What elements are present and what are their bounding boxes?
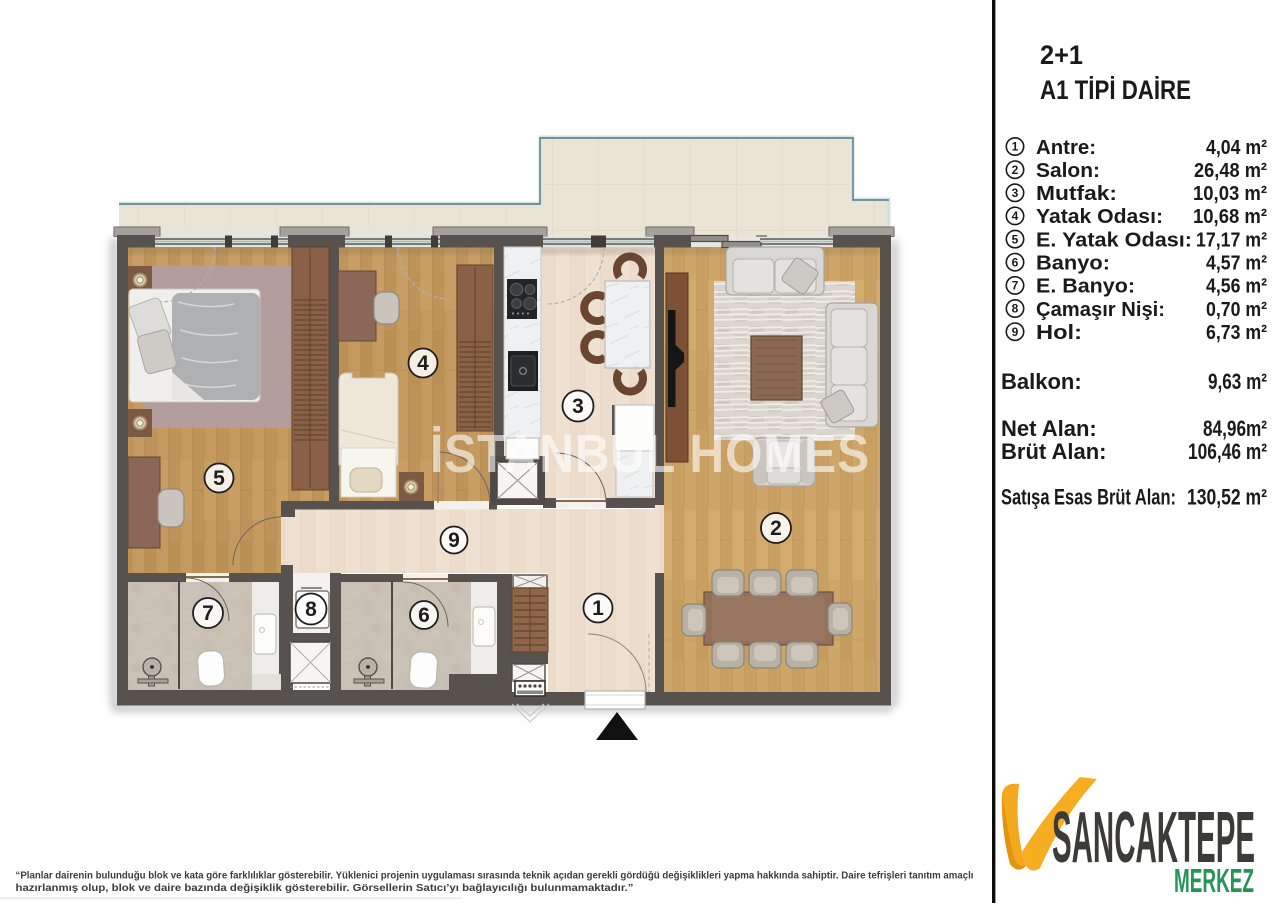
- svg-text:10,68 m²: 10,68 m²: [1193, 205, 1267, 228]
- svg-text:4,57 m²: 4,57 m²: [1206, 252, 1267, 275]
- svg-text:9: 9: [1012, 325, 1019, 339]
- svg-text:0,70 m²: 0,70 m²: [1206, 298, 1267, 321]
- svg-text:7: 7: [202, 602, 214, 625]
- svg-text:MERKEZ: MERKEZ: [1174, 863, 1254, 900]
- svg-text:4,56 m²: 4,56 m²: [1206, 275, 1267, 298]
- svg-text:Balkon:: Balkon:: [1001, 369, 1082, 394]
- svg-text:9: 9: [448, 529, 460, 552]
- svg-text:6: 6: [418, 604, 430, 627]
- svg-text:106,46 m²: 106,46 m²: [1188, 439, 1267, 464]
- svg-text:Brüt Alan:: Brüt Alan:: [1001, 439, 1107, 464]
- svg-text:8: 8: [305, 598, 317, 621]
- svg-text:Salon:: Salon:: [1036, 159, 1100, 182]
- svg-text:Çamaşır Nişi:: Çamaşır Nişi:: [1036, 298, 1165, 321]
- svg-text:Antre:: Antre:: [1036, 136, 1096, 159]
- svg-text:6,73 m²: 6,73 m²: [1206, 321, 1267, 344]
- svg-text:E. Yatak Odası:: E. Yatak Odası:: [1036, 228, 1192, 251]
- svg-text:Yatak Odası:: Yatak Odası:: [1036, 205, 1163, 228]
- svg-text:Hol:: Hol:: [1036, 321, 1082, 344]
- svg-text:hazırlanmış olup, blok ve dair: hazırlanmış olup, blok ve daire bazında …: [16, 883, 634, 894]
- svg-text:17,17 m²: 17,17 m²: [1196, 228, 1267, 251]
- svg-text:Satışa Esas Brüt Alan:: Satışa Esas Brüt Alan:: [1001, 485, 1176, 510]
- svg-text:Banyo:: Banyo:: [1036, 252, 1110, 275]
- svg-text:1: 1: [1012, 140, 1019, 154]
- svg-text:5: 5: [1012, 232, 1019, 246]
- svg-text:A1 TİPİ DAİRE: A1 TİPİ DAİRE: [1040, 75, 1191, 105]
- svg-text:“Planlar dairenin bulunduğu bl: “Planlar dairenin bulunduğu blok ve kata…: [16, 871, 974, 882]
- svg-text:4: 4: [1012, 209, 1019, 223]
- svg-text:7: 7: [1012, 279, 1019, 293]
- svg-text:İSTANBUL HOMES: İSTANBUL HOMES: [430, 424, 870, 484]
- svg-text:6: 6: [1012, 255, 1019, 269]
- svg-text:Mutfak:: Mutfak:: [1036, 182, 1117, 205]
- svg-text:130,52 m²: 130,52 m²: [1187, 485, 1267, 510]
- svg-text:2: 2: [1012, 163, 1019, 177]
- svg-text:E. Banyo:: E. Banyo:: [1036, 275, 1135, 298]
- svg-text:26,48 m²: 26,48 m²: [1194, 159, 1267, 182]
- svg-text:9,63 m²: 9,63 m²: [1208, 369, 1267, 394]
- svg-text:4,04 m²: 4,04 m²: [1206, 136, 1267, 159]
- svg-text:2: 2: [770, 517, 782, 540]
- svg-text:4: 4: [417, 352, 429, 375]
- svg-text:3: 3: [572, 395, 584, 418]
- svg-text:8: 8: [1012, 302, 1019, 316]
- svg-text:5: 5: [213, 467, 225, 490]
- svg-text:1: 1: [592, 597, 604, 620]
- svg-text:84,96m²: 84,96m²: [1203, 416, 1267, 441]
- svg-text:3: 3: [1012, 186, 1019, 200]
- svg-text:Net Alan:: Net Alan:: [1001, 416, 1097, 441]
- svg-text:10,03 m²: 10,03 m²: [1193, 182, 1267, 205]
- svg-text:2+1: 2+1: [1040, 40, 1083, 70]
